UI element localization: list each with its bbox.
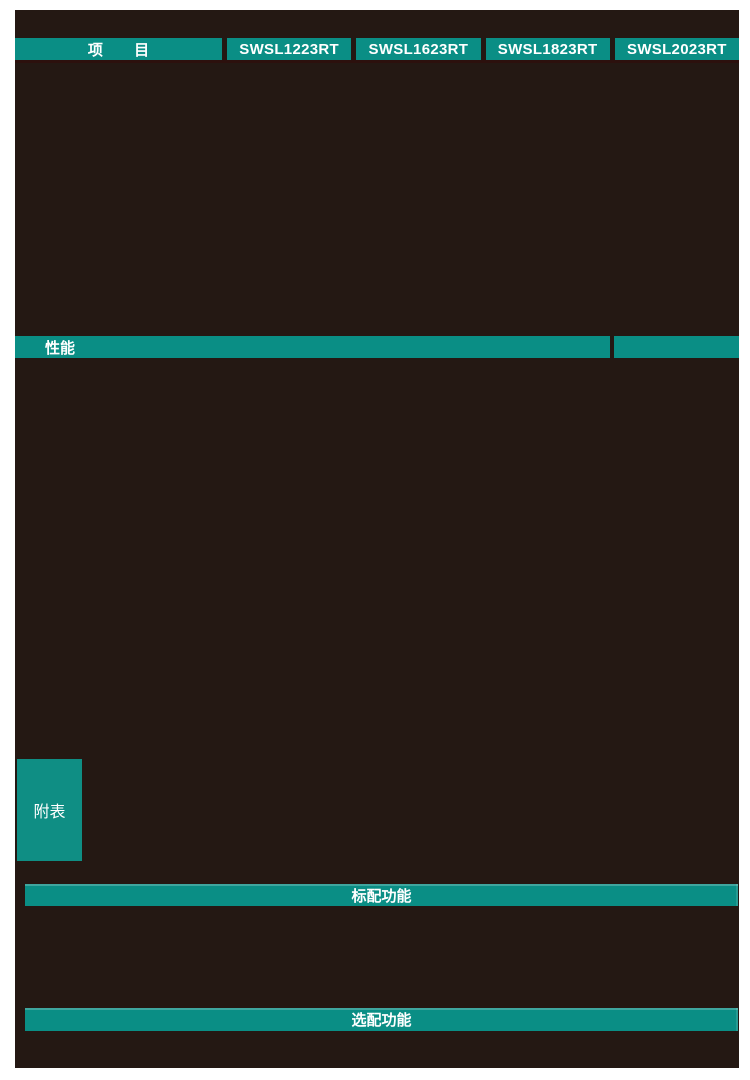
model-column-header-1: SWSL1223RT xyxy=(227,38,351,60)
performance-section-header: 性能 xyxy=(15,336,610,358)
catalog-page: 项 目 SWSL1223RT SWSL1623RT SWSL1823RT SWS… xyxy=(0,0,750,1080)
appendix-label-box: 附表 xyxy=(17,759,82,861)
optional-features-section-header: 选配功能 xyxy=(25,1008,738,1031)
model-header-row: 项 目 SWSL1223RT SWSL1623RT SWSL1823RT SWS… xyxy=(15,38,739,60)
performance-section-header-tail xyxy=(614,336,739,358)
item-column-header: 项 目 xyxy=(15,38,222,60)
model-column-header-3: SWSL1823RT xyxy=(486,38,610,60)
spec-table-panel xyxy=(15,10,739,1068)
header-divider xyxy=(15,60,739,63)
model-column-header-4: SWSL2023RT xyxy=(615,38,739,60)
standard-features-section-header: 标配功能 xyxy=(25,884,738,906)
performance-section-row: 性能 xyxy=(15,336,739,358)
model-column-header-2: SWSL1623RT xyxy=(356,38,480,60)
